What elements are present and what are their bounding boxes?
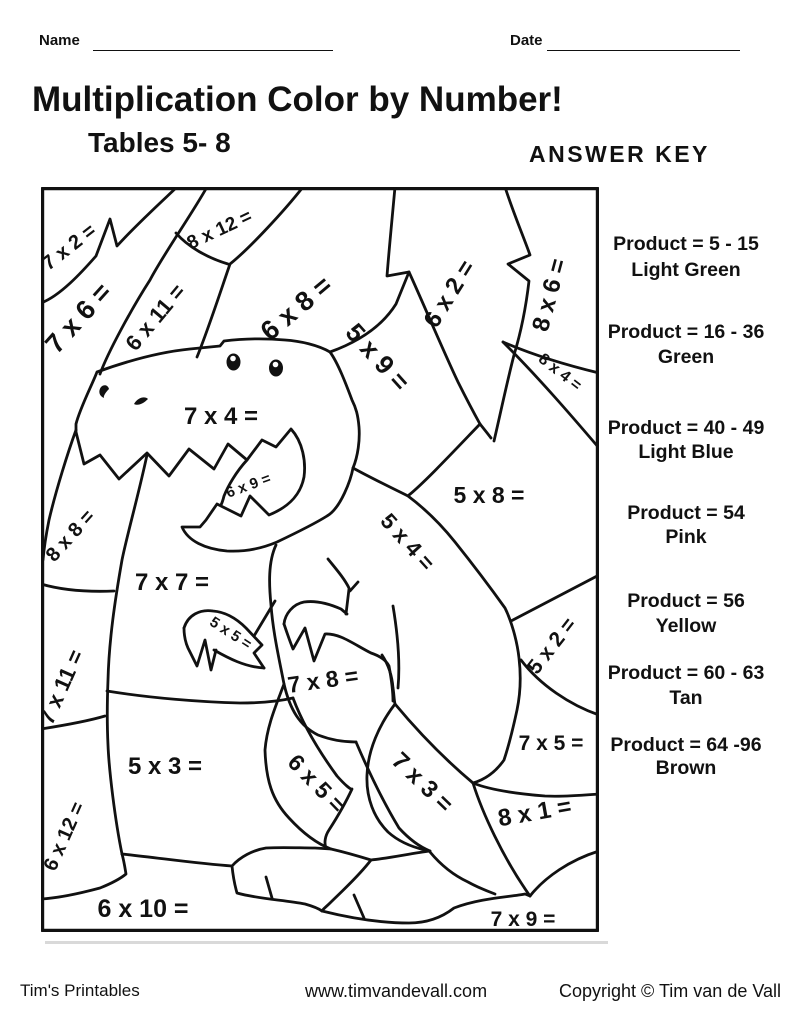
svg-text:7 x 6 =: 7 x 6 = — [41, 277, 117, 359]
svg-text:6 x 2 =: 6 x 2 = — [419, 255, 481, 332]
svg-text:6 x 5 =: 6 x 5 = — [283, 749, 351, 818]
svg-text:7 x 7 =: 7 x 7 = — [135, 569, 209, 596]
svg-text:7 x 3 =: 7 x 3 = — [386, 747, 458, 818]
svg-text:7 x 4 =: 7 x 4 = — [184, 403, 258, 430]
svg-text:6 x 11 =: 6 x 11 = — [120, 279, 190, 356]
svg-text:5 x 5 =: 5 x 5 = — [206, 613, 254, 653]
svg-text:5 x 4 =: 5 x 4 = — [376, 508, 440, 575]
svg-text:7 x 11 =: 7 x 11 = — [41, 646, 89, 728]
svg-text:5 x 3 =: 5 x 3 = — [128, 753, 202, 780]
svg-text:7 x 5 =: 7 x 5 = — [519, 732, 584, 755]
svg-text:5 x 8 =: 5 x 8 = — [454, 482, 525, 508]
svg-text:6 x 8 =: 6 x 8 = — [255, 270, 338, 347]
svg-text:8 x 12 =: 8 x 12 = — [184, 206, 256, 254]
svg-text:8 x 6 =: 8 x 6 = — [527, 256, 572, 335]
svg-text:5 x 9 =: 5 x 9 = — [340, 317, 416, 397]
svg-text:8 x 1 =: 8 x 1 = — [496, 793, 574, 832]
svg-text:7 x 2 =: 7 x 2 = — [41, 220, 100, 275]
svg-text:6 x 10 =: 6 x 10 = — [97, 895, 188, 923]
svg-text:6 x 12 =: 6 x 12 = — [41, 799, 89, 874]
svg-text:7 x 8 =: 7 x 8 = — [286, 662, 360, 698]
svg-text:7 x 9 =: 7 x 9 = — [491, 908, 556, 931]
svg-text:8 x 4 =: 8 x 4 = — [535, 351, 584, 395]
svg-text:5 x 2 =: 5 x 2 = — [523, 613, 581, 678]
